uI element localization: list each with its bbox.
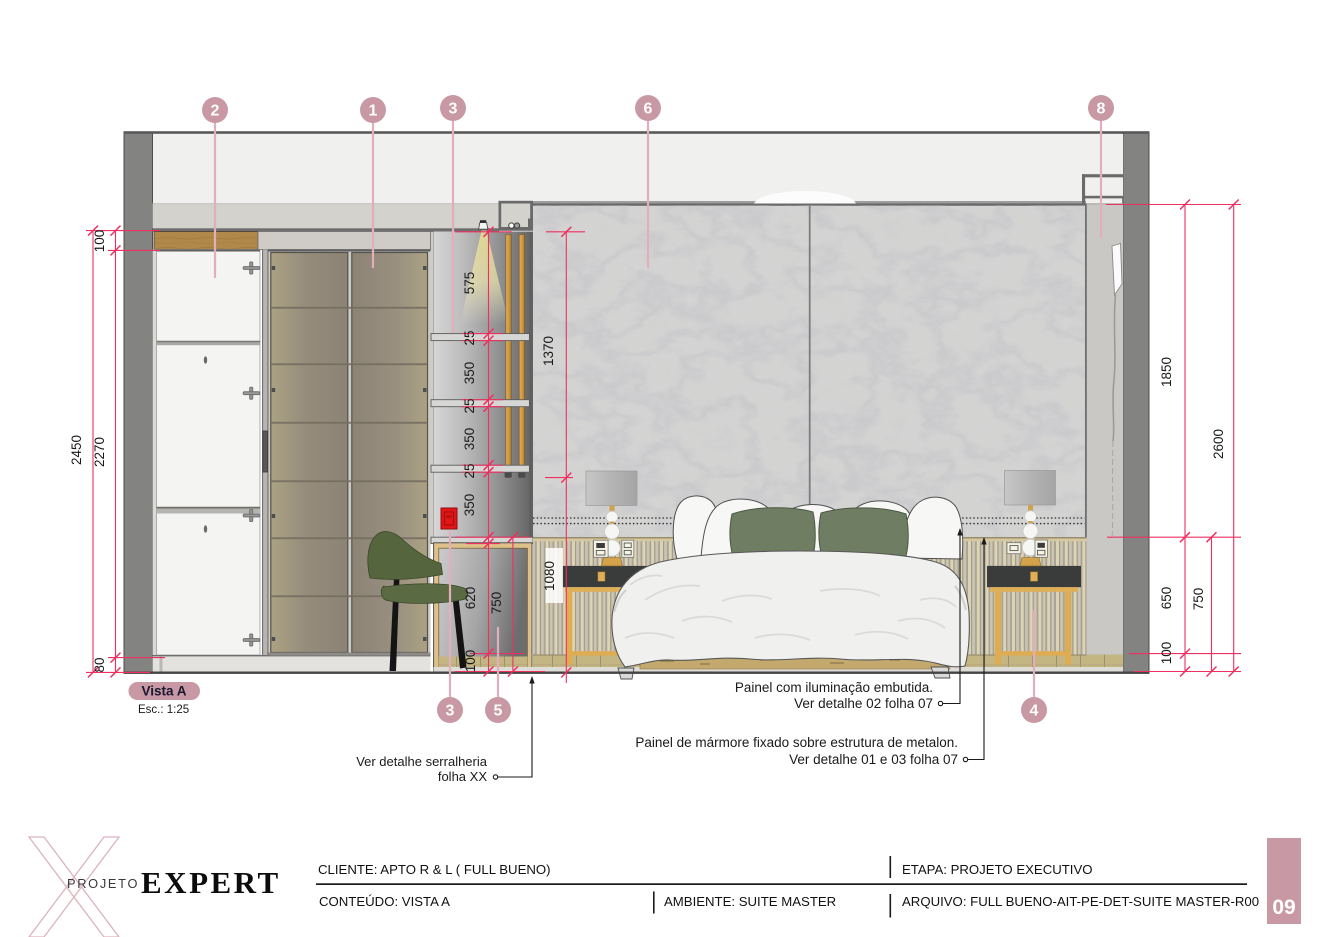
svg-text:350: 350 bbox=[462, 428, 477, 451]
svg-text:350: 350 bbox=[462, 494, 477, 517]
svg-text:Ver detalhe serralheria: Ver detalhe serralheria bbox=[356, 754, 488, 769]
svg-text:750: 750 bbox=[489, 592, 504, 615]
svg-text:3: 3 bbox=[446, 703, 455, 720]
svg-text:575: 575 bbox=[462, 272, 477, 295]
svg-text:1080: 1080 bbox=[542, 561, 557, 591]
svg-text:3: 3 bbox=[449, 101, 458, 118]
svg-text:100: 100 bbox=[1159, 642, 1174, 665]
svg-text:6: 6 bbox=[644, 101, 653, 118]
svg-text:25: 25 bbox=[462, 463, 477, 478]
svg-text:620: 620 bbox=[463, 587, 478, 610]
svg-text:1850: 1850 bbox=[1159, 357, 1174, 387]
svg-text:1: 1 bbox=[369, 103, 378, 120]
svg-text:Ver detalhe 02 folha 07: Ver detalhe 02 folha 07 bbox=[794, 696, 933, 711]
svg-text:2450: 2450 bbox=[69, 435, 84, 465]
svg-text:Vista A: Vista A bbox=[141, 684, 186, 699]
svg-text:folha XX: folha XX bbox=[438, 769, 487, 784]
svg-text:ARQUIVO: FULL BUENO-AIT-PE-DET: ARQUIVO: FULL BUENO-AIT-PE-DET-SUITE MAS… bbox=[902, 894, 1259, 909]
svg-text:EXPERT: EXPERT bbox=[141, 865, 281, 900]
svg-text:09: 09 bbox=[1272, 896, 1295, 919]
svg-text:1370: 1370 bbox=[541, 336, 556, 366]
svg-text:100: 100 bbox=[92, 230, 107, 253]
svg-text:25: 25 bbox=[462, 330, 477, 345]
svg-text:PROJETO: PROJETO bbox=[67, 876, 139, 891]
svg-text:2: 2 bbox=[211, 103, 220, 120]
svg-text:750: 750 bbox=[1191, 588, 1206, 611]
svg-text:650: 650 bbox=[1159, 587, 1174, 610]
svg-text:AMBIENTE: SUITE MASTER: AMBIENTE: SUITE MASTER bbox=[664, 894, 836, 909]
svg-text:CLIENTE: APTO R & L ( FULL BU: CLIENTE: APTO R & L ( FULL BUENO) bbox=[318, 862, 551, 877]
svg-text:Ver detalhe 01 e 03 folha 07: Ver detalhe 01 e 03 folha 07 bbox=[789, 752, 958, 767]
svg-text:2600: 2600 bbox=[1211, 429, 1226, 459]
svg-text:Painel com iluminação embutida: Painel com iluminação embutida. bbox=[735, 680, 933, 695]
svg-text:ETAPA: PROJETO EXECUTIVO: ETAPA: PROJETO EXECUTIVO bbox=[902, 862, 1093, 877]
svg-text:Painel de mármore fixado sobr: Painel de mármore fixado sobre estrutura… bbox=[635, 735, 958, 750]
svg-text:2270: 2270 bbox=[92, 437, 107, 467]
svg-text:80: 80 bbox=[92, 657, 107, 672]
svg-text:8: 8 bbox=[1097, 101, 1106, 118]
svg-text:4: 4 bbox=[1030, 703, 1039, 720]
svg-text:CONTEÚDO: VISTA A: CONTEÚDO: VISTA A bbox=[319, 894, 450, 909]
svg-text:25: 25 bbox=[462, 398, 477, 413]
svg-text:350: 350 bbox=[462, 362, 477, 385]
svg-text:5: 5 bbox=[494, 703, 503, 720]
svg-text:Esc.: 1:25: Esc.: 1:25 bbox=[138, 704, 189, 716]
svg-text:100: 100 bbox=[463, 650, 478, 673]
